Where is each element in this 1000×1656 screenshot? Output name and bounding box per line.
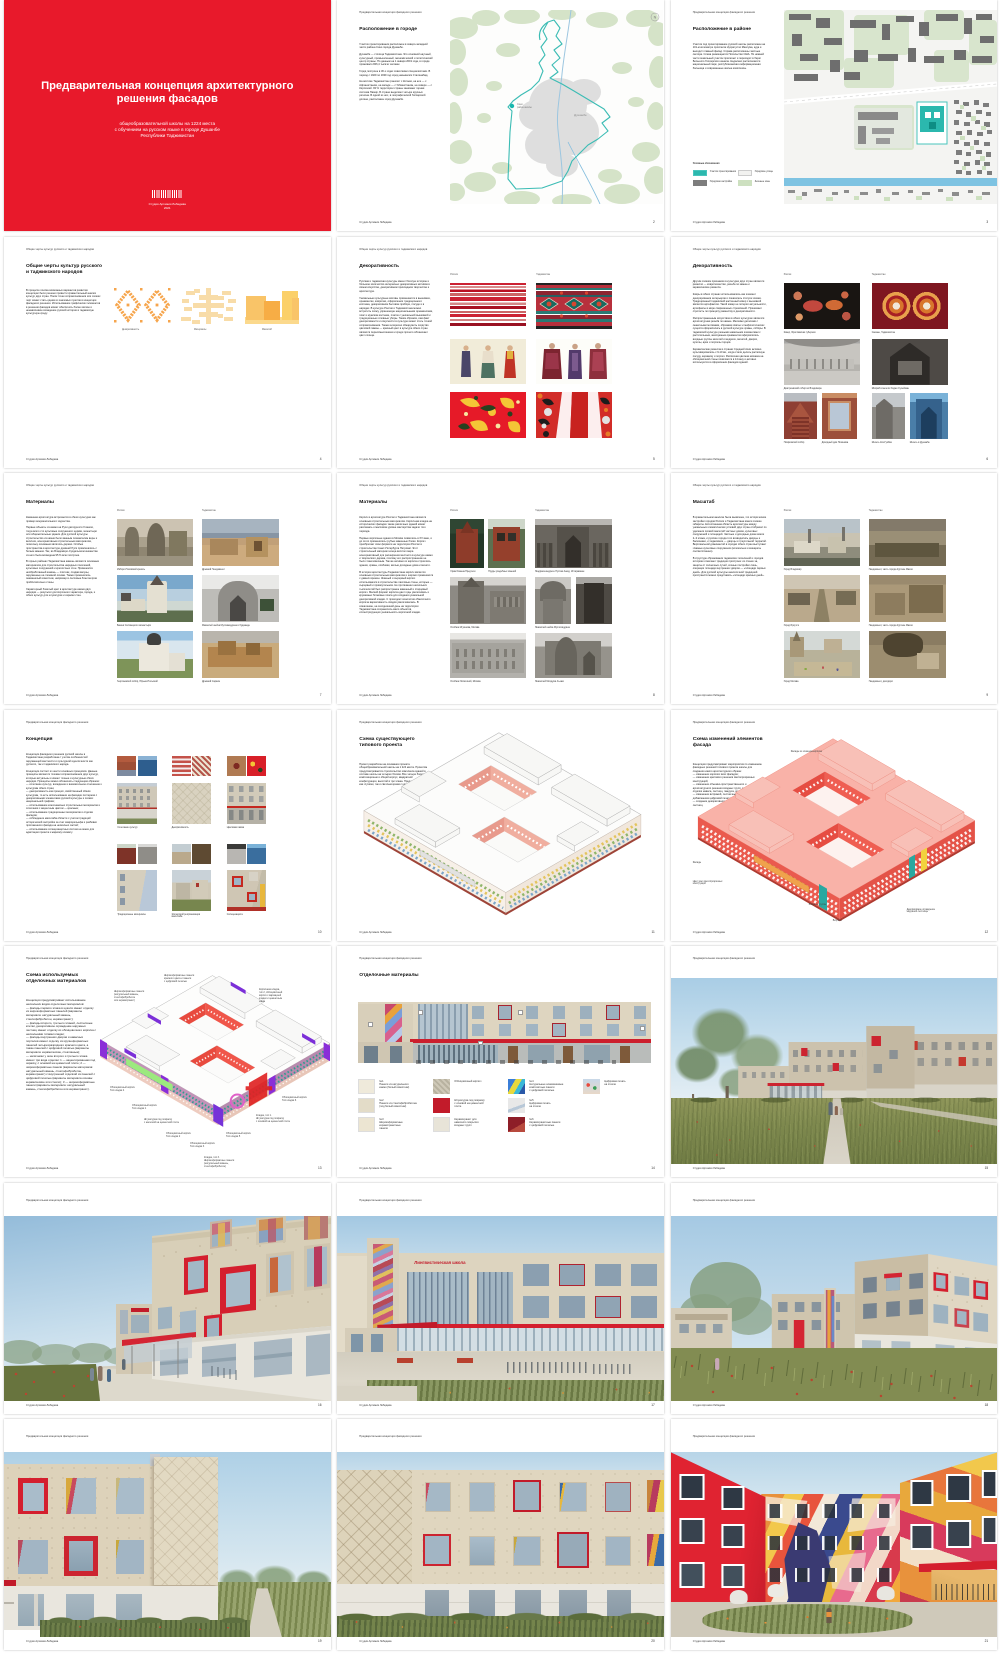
- svg-text:N: N: [654, 16, 657, 20]
- svg-text:Душанбе: Душанбе: [574, 113, 587, 117]
- svg-text:район школы: район школы: [517, 106, 532, 109]
